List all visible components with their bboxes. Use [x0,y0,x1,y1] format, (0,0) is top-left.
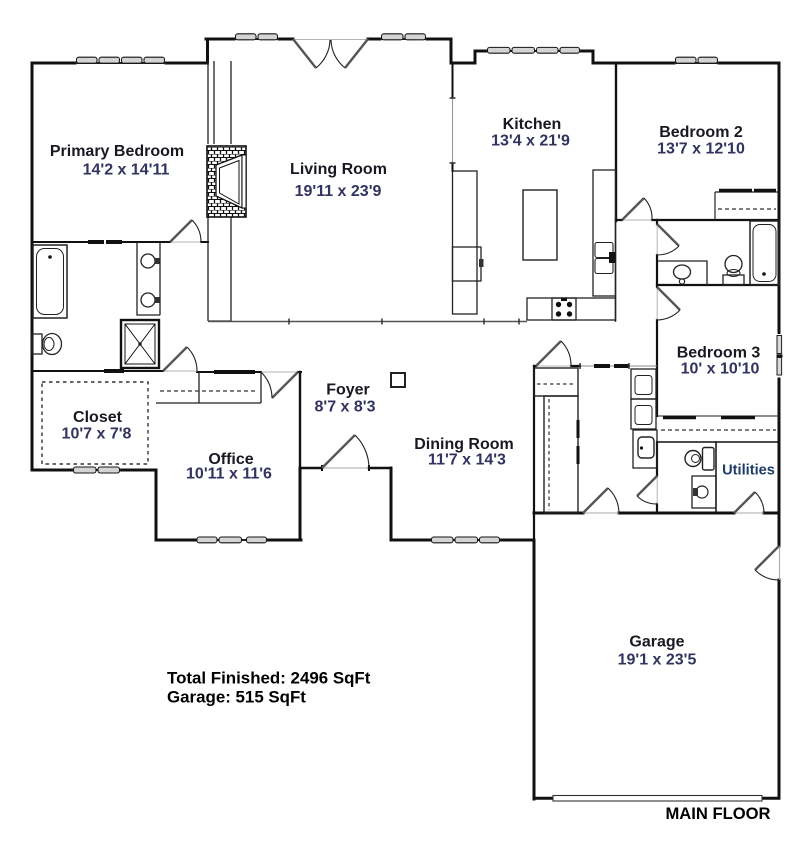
svg-text:10'7 x 7'8: 10'7 x 7'8 [62,426,132,443]
svg-text:Bedroom 3: Bedroom 3 [677,345,761,362]
svg-text:10'11 x 11'6: 10'11 x 11'6 [186,466,272,483]
svg-text:Utilities: Utilities [722,463,775,479]
svg-text:10' x 10'10: 10' x 10'10 [681,361,760,378]
svg-text:13'4 x 21'9: 13'4 x 21'9 [491,133,570,150]
svg-text:Total Finished: 2496 SqFt: Total Finished: 2496 SqFt [167,669,371,688]
svg-text:Living Room: Living Room [290,161,387,178]
svg-text:Foyer: Foyer [326,382,370,399]
svg-text:13'7 x 12'10: 13'7 x 12'10 [657,141,745,158]
svg-text:Primary Bedroom: Primary Bedroom [50,143,184,160]
svg-text:Dining Room: Dining Room [414,436,514,453]
svg-text:8'7 x 8'3: 8'7 x 8'3 [315,399,376,416]
svg-text:14'2 x 14'11: 14'2 x 14'11 [83,162,170,179]
svg-text:11'7 x 14'3: 11'7 x 14'3 [428,452,506,469]
svg-text:19'11 x 23'9: 19'11 x 23'9 [295,183,382,200]
svg-text:19'1 x 23'5: 19'1 x 23'5 [618,652,697,669]
svg-text:Garage: Garage [629,634,684,651]
svg-text:Bedroom 2: Bedroom 2 [659,124,743,141]
svg-text:Kitchen: Kitchen [503,116,562,133]
svg-text:MAIN FLOOR: MAIN FLOOR [665,804,770,823]
svg-text:Garage: 515 SqFt: Garage: 515 SqFt [167,688,306,707]
svg-text:Closet: Closet [73,409,123,426]
